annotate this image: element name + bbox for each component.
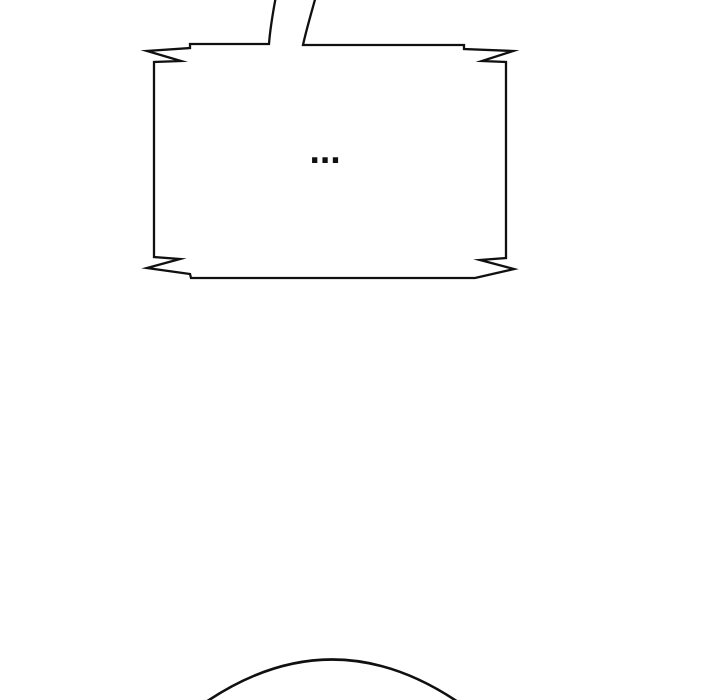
character-head-outline <box>206 660 458 700</box>
comic-panel: ... <box>0 0 720 700</box>
speech-bubble-text: ... <box>309 144 340 164</box>
panel-artwork <box>0 0 720 700</box>
